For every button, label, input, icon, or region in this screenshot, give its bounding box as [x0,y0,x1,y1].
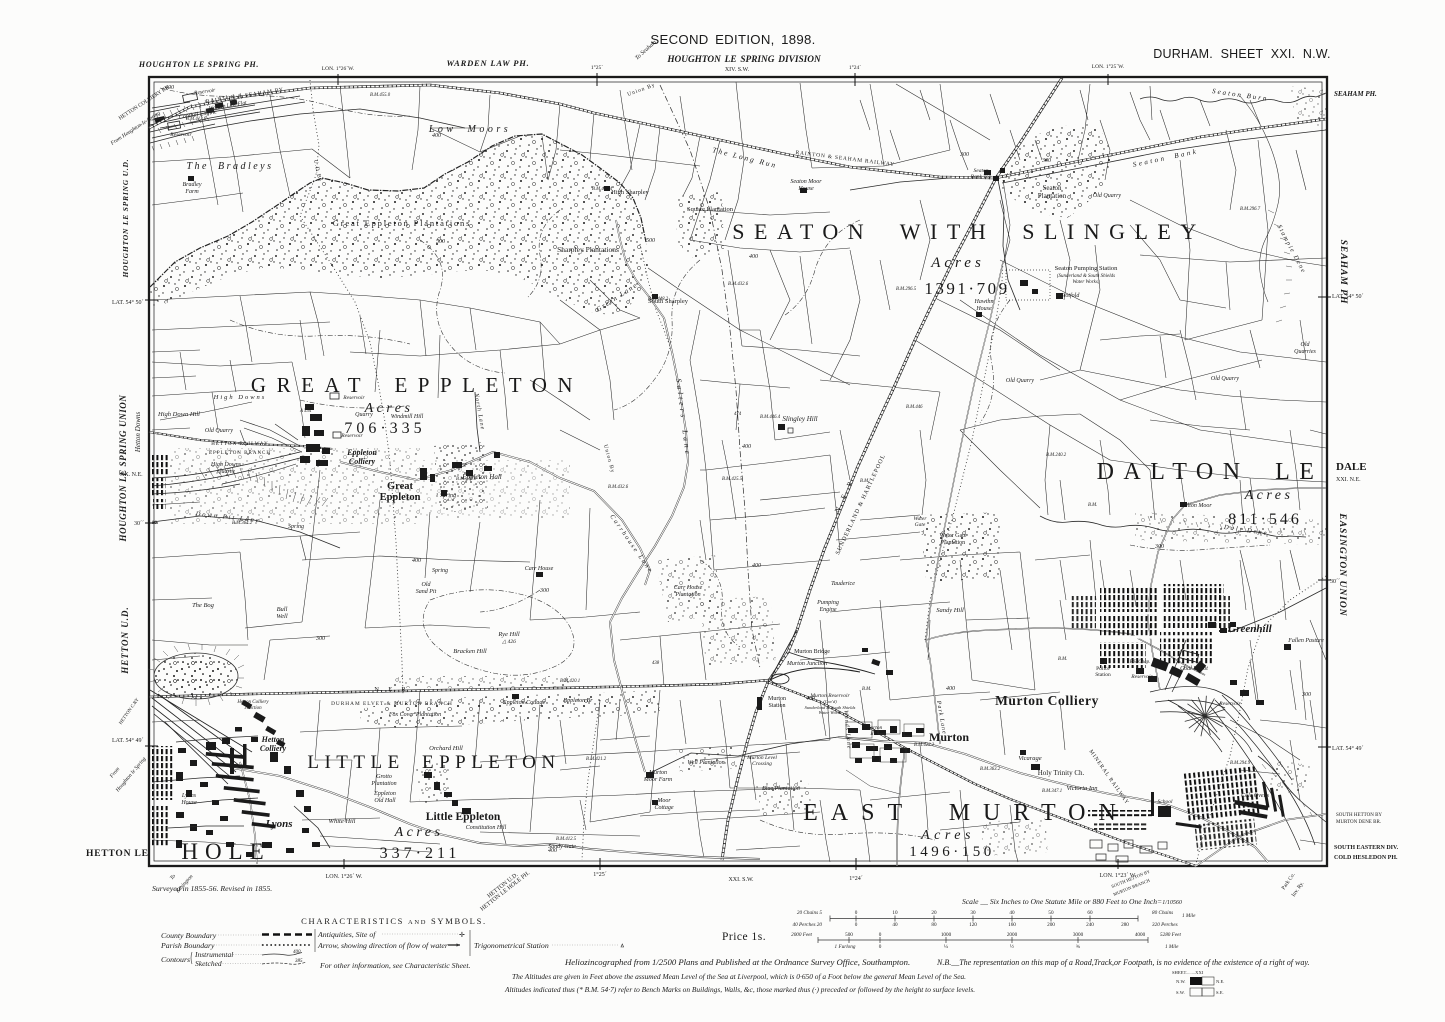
svg-text:Great: Great [387,481,414,492]
svg-text:400: 400 [742,443,751,450]
svg-text:Eppleton: Eppleton [380,492,421,503]
svg-text:300: 300 [959,152,969,158]
svg-text:EPPLETON BRANCH: EPPLETON BRANCH [209,451,271,456]
svg-text:B.M.432.6: B.M.432.6 [728,282,749,287]
svg-text:200: 200 [1047,922,1055,928]
svg-text:500: 500 [646,238,655,244]
svg-text:400: 400 [946,685,955,692]
svg-text:Fallen Pasture: Fallen Pasture [1287,638,1324,644]
svg-text:Instrumental: Instrumental [194,950,233,959]
svg-text:40 Perches 20: 40 Perches 20 [793,921,823,928]
svg-text:House: House [180,800,197,806]
svg-text:300: 300 [1301,692,1311,698]
svg-text:Acres: Acres [920,828,975,843]
svg-text:B.M.: B.M. [862,687,871,692]
svg-text:400: 400 [432,132,441,139]
svg-text:B.M.432.6: B.M.432.6 [608,485,629,490]
svg-text:Quarry: Quarry [217,469,235,475]
svg-text:N. E. R: N. E. R [374,686,408,693]
svg-text:High Downs: High Downs [210,462,242,468]
svg-text:White Hill: White Hill [329,818,356,825]
svg-text:Eppleton: Eppleton [373,791,396,797]
svg-text:Bradley: Bradley [183,182,202,188]
svg-text:P.S. Chap.: P.S. Chap. [1129,660,1151,665]
svg-text:Moor Farm: Moor Farm [643,777,673,783]
svg-text:0: 0 [855,922,858,928]
svg-text:SOUTH HETTON BY: SOUTH HETTON BY [1336,813,1382,818]
svg-text:HOUGHTON LE SPRING PH.: HOUGHTON LE SPRING PH. [138,60,259,69]
svg-text:B.M.448.2: B.M.448.2 [648,297,669,302]
svg-text:30´´: 30´´ [1330,579,1340,585]
svg-text:Cole Ovens: Cole Ovens [1241,793,1269,799]
svg-text:30: 30 [970,910,976,916]
svg-text:Lyons: Lyons [264,818,292,830]
svg-text:80: 80 [931,922,937,928]
svg-text:Eppleton: Eppleton [346,448,377,457]
svg-text:Moor: Moor [656,798,671,804]
svg-text:County Boundary: County Boundary [161,931,217,940]
svg-text:Quarry: Quarry [355,412,373,418]
svg-text:Reservoir: Reservoir [1130,674,1153,680]
svg-text:Altitudes indicated thus (* B.: Altitudes indicated thus (* B.M. 54·7) r… [504,985,975,994]
svg-text:B.M.: B.M. [1088,503,1097,508]
svg-text:Plantation: Plantation [370,781,396,787]
svg-text:0: 0 [879,944,882,950]
svg-text:Stotfold: Stotfold [1061,292,1081,299]
svg-text:Old Quarry: Old Quarry [1006,378,1035,384]
svg-text:3000: 3000 [1073,932,1084,938]
svg-text:SECOND EDITION, 1898.: SECOND EDITION, 1898. [650,32,815,47]
svg-text:Acres: Acres [930,255,985,271]
svg-text:Fox Cover Plantation: Fox Cover Plantation [388,712,441,718]
svg-text:Old: Old [422,582,432,588]
svg-text:EAST MURTON: EAST MURTON [803,800,1129,826]
svg-text:Heliozincographed from 1/2500: Heliozincographed from 1/2500 Plans and … [564,957,910,967]
svg-text:Seaton Pumping Station: Seaton Pumping Station [1055,265,1119,272]
svg-text:B.M.364.2: B.M.364.2 [232,521,253,526]
svg-text:Spring: Spring [440,493,456,499]
svg-text:Well Plantation: Well Plantation [687,760,724,766]
svg-text:0: 0 [855,910,858,916]
svg-text:B.M.296.7: B.M.296.7 [1240,207,1261,212]
svg-text:The Bradleys: The Bradleys [186,161,273,172]
svg-text:Colliery: Colliery [349,457,376,466]
svg-text:160: 160 [1008,922,1016,928]
svg-text:Station: Station [768,703,785,709]
svg-text:Plantation: Plantation [674,592,700,598]
svg-text:CHARACTERISTICS AND SYMBOLS.: CHARACTERISTICS AND SYMBOLS. [301,916,487,926]
svg-text:80 Chains: 80 Chains [1152,910,1173,916]
svg-text:300: 300 [315,636,325,642]
svg-text:B.M.455.0: B.M.455.0 [370,93,391,98]
svg-text:WARDEN LAW PH.: WARDEN LAW PH. [446,58,529,68]
svg-text:DALE: DALE [1336,461,1367,473]
svg-text:Surveyed in 1855-56. Revised: Surveyed in 1855-56. Revised in 1855. [152,884,272,893]
svg-text:10: 10 [892,910,898,916]
svg-text:COLD HESLEDON PH.: COLD HESLEDON PH. [1334,855,1398,861]
svg-text:Reservoir: Reservoir [340,433,363,439]
svg-text:High Down Hill: High Down Hill [157,411,200,418]
svg-text:Hetton Colliery: Hetton Colliery [236,700,269,705]
svg-text:Water Gate: Water Gate [940,533,967,539]
svg-text:320 Perches: 320 Perches [1152,922,1178,928]
svg-text:XXI. S.W.: XXI. S.W. [728,877,754,883]
svg-text:Station: Station [1095,672,1111,678]
svg-text:Reservoir: Reservoir [342,395,365,401]
svg-text:SHEET........XXI: SHEET........XXI [1172,970,1204,975]
svg-text:N.E.: N.E. [1216,979,1224,984]
svg-text:120: 120 [969,922,977,928]
svg-text:1496·150: 1496·150 [909,844,995,860]
svg-text:Acres: Acres [394,825,444,840]
svg-text:Spring: Spring [288,524,304,530]
svg-text:LAT. 54° 50´: LAT. 54° 50´ [112,299,143,306]
svg-text:The Bog: The Bog [192,602,215,609]
svg-text:½: ½ [1010,943,1014,950]
svg-text:N.W.: N.W. [1176,979,1186,984]
svg-text:0: 0 [879,932,882,938]
svg-text:400: 400 [548,847,557,854]
svg-text:DURHAM. SHEET XXI. N.W.: DURHAM. SHEET XXI. N.W. [1153,47,1331,61]
svg-text:LON. 1°26´ W.: LON. 1°26´ W. [326,873,363,880]
svg-text:B.M.425.5: B.M.425.5 [722,477,743,482]
svg-text:HETTON RAILWAY: HETTON RAILWAY [211,442,268,447]
svg-text:Constitution Hill: Constitution Hill [466,825,507,831]
svg-text:5280 Feet: 5280 Feet [1160,932,1181,938]
svg-text:B.M.446: B.M.446 [906,405,923,410]
svg-text:Murton Bridge: Murton Bridge [794,649,830,655]
svg-text:Hetton Downs: Hetton Downs [134,412,142,454]
svg-text:Junction: Junction [244,706,262,711]
svg-text:337·211: 337·211 [380,845,461,862]
svg-text:LAT. 54° 50´: LAT. 54° 50´ [1332,293,1363,300]
svg-text:Greenhill: Greenhill [1228,623,1272,635]
svg-text:Reservoir: Reservoir [169,132,192,138]
svg-text:LON. 1°26´W.: LON. 1°26´W. [322,65,355,72]
svg-text:House: House [975,306,992,312]
svg-text:Bracken Hill: Bracken Hill [453,648,487,655]
svg-text:Price 1s.: Price 1s. [722,931,766,943]
svg-text:Pumping: Pumping [816,600,839,606]
svg-text:HOLE: HOLE [181,839,270,864]
svg-text:300: 300 [539,588,549,594]
svg-text:B.M.412.6: B.M.412.6 [186,117,207,122]
svg-text:1°25´: 1°25´ [593,871,606,878]
svg-text:S.W.: S.W. [1176,990,1185,995]
svg-text:Parish Boundary: Parish Boundary [160,941,215,950]
svg-text:1391·709: 1391·709 [924,279,1009,298]
svg-text:A 534: A 534 [299,409,312,414]
svg-text:B.M.442.4: B.M.442.4 [592,187,613,192]
svg-text:Antiquities, Site of: Antiquities, Site of [317,930,377,939]
svg-text:B.M.: B.M. [860,479,869,484]
svg-text:SEATON WITH SLINGLEY: SEATON WITH SLINGLEY [732,219,1206,244]
svg-text:40: 40 [892,922,898,928]
svg-text:Quarries: Quarries [1294,349,1316,355]
svg-text:B.M.363.2: B.M.363.2 [980,767,1001,772]
svg-text:Murton Colliery: Murton Colliery [995,693,1099,708]
svg-text:XIV. S.W.: XIV. S.W. [725,67,750,73]
svg-text:Cottage: Cottage [655,805,674,811]
svg-text:400: 400 [752,562,761,569]
svg-text:Rye Hill: Rye Hill [497,631,520,638]
svg-text:Carr House: Carr House [674,585,703,591]
svg-text:XX. N.E.: XX. N.E. [120,472,143,478]
svg-text:HOUGHTON LE SPRING DIVISION: HOUGHTON LE SPRING DIVISION [666,55,821,65]
svg-text:1°24´: 1°24´ [849,875,862,882]
svg-text:Contours: Contours [161,955,190,964]
svg-text:MURTON DENE BR.: MURTON DENE BR. [1336,820,1381,825]
svg-text:B.M.240.2: B.M.240.2 [1046,453,1067,458]
svg-text:N.B.__The representation on th: N.B.__The representation on this map of … [936,958,1309,967]
svg-text:HETTON LE: HETTON LE [86,849,149,859]
svg-text:438: 438 [652,661,660,666]
svg-text:Carr House: Carr House [525,566,554,572]
svg-text:400: 400 [293,950,301,955]
svg-text:SOUTH EASTERN DIV.: SOUTH EASTERN DIV. [1334,845,1399,851]
svg-text:Well: Well [276,613,288,620]
svg-text:Engine: Engine [819,607,837,613]
svg-text:500: 500 [436,239,445,245]
svg-text:Colliery: Colliery [260,744,287,753]
svg-text:Slingley Hill: Slingley Hill [782,415,817,423]
svg-text:Old Quarry: Old Quarry [1093,193,1122,199]
svg-text:LAT. 54° 49´: LAT. 54° 49´ [112,737,143,744]
svg-text:Plantation: Plantation [941,540,965,546]
svg-text:¼: ¼ [944,944,948,950]
svg-text:B.M.296.5: B.M.296.5 [896,287,917,292]
svg-text:S.E.: S.E. [1216,990,1224,995]
svg-text:¾: ¾ [1076,943,1080,950]
svg-text:1 Mile: 1 Mile [1182,913,1196,919]
svg-text:400: 400 [806,695,815,702]
svg-text:LAT. 54° 49´: LAT. 54° 49´ [1332,745,1363,752]
svg-text:Reservoir: Reservoir [1218,701,1241,707]
svg-text:20 Chains 5: 20 Chains 5 [797,910,822,916]
svg-text:GREAT EPPLETON: GREAT EPPLETON [251,373,583,397]
svg-text:Square Plantation: Square Plantation [687,206,734,213]
svg-text:School: School [1158,799,1173,805]
svg-text:B.M.412.5: B.M.412.5 [556,837,577,842]
svg-text:40: 40 [1009,910,1015,916]
svg-text:HOUGHTON LE SPRING U.D.: HOUGHTON LE SPRING U.D. [121,159,130,279]
svg-text:2000: 2000 [1007,932,1018,938]
svg-text:High Sharpley: High Sharpley [611,189,649,196]
svg-text:B.M.: B.M. [1058,657,1067,662]
svg-text:Orchard Hill: Orchard Hill [429,745,463,752]
svg-text:400: 400 [412,557,421,564]
svg-text:385: 385 [295,959,303,964]
svg-text:HETTON U.D.: HETTON U.D. [120,606,130,675]
svg-text:Old: Old [1301,342,1311,348]
svg-text:30´´: 30´´ [134,521,144,527]
svg-text:(Sunderland & South Shields: (Sunderland & South Shields [1057,274,1115,279]
svg-text:Spring: Spring [432,568,448,574]
svg-text:DURHAM ELVET & MURTON BRANCH: DURHAM ELVET & MURTON BRANCH [331,701,453,707]
svg-text:The Altitudes are given in Fee: The Altitudes are given in Feet above th… [512,972,966,981]
svg-text:Bank Top: Bank Top [971,174,992,180]
svg-text:500: 500 [845,932,853,938]
svg-text:20: 20 [931,910,937,916]
svg-text:Sketched: Sketched [195,959,222,968]
svg-text:High Downs: High Downs [213,394,267,401]
svg-text:Little Eppleton: Little Eppleton [426,811,501,823]
svg-text:Blue Plantation: Blue Plantation [762,786,800,792]
svg-text:Arrow, showing direction of fl: Arrow, showing direction of flow of wate… [317,941,449,950]
svg-text:Windmill Hill: Windmill Hill [391,414,424,420]
svg-text:SEAHAM PH.: SEAHAM PH. [1334,90,1377,98]
svg-text:Eppleton Br: Eppleton Br [562,698,593,704]
svg-text:Gate: Gate [915,522,926,528]
svg-text:Holy Trinity Ch.: Holy Trinity Ch. [1038,769,1085,777]
svg-text:50: 50 [1048,910,1054,916]
svg-text:Old Hall: Old Hall [374,798,396,804]
svg-text:300: 300 [1041,158,1051,164]
svg-text:300: 300 [1154,544,1164,550]
svg-text:Grotto: Grotto [376,774,392,780]
svg-text:(Cov'd): (Cov'd) [823,699,837,704]
svg-text:LITTLE EPPLETON: LITTLE EPPLETON [307,752,560,773]
svg-text:LON. 1°25´W.: LON. 1°25´W. [1092,63,1125,70]
svg-text:1 Furlong: 1 Furlong [835,944,856,950]
svg-text:For other information, see Cha: For other information, see Characteristi… [319,961,471,970]
svg-text:60: 60 [1087,910,1093,916]
svg-text:400: 400 [749,253,758,260]
svg-text:B.M.422.2: B.M.422.2 [914,743,935,748]
svg-text:B.M.347.1: B.M.347.1 [1042,789,1062,794]
svg-text:Dalton Moor: Dalton Moor [1179,503,1212,509]
svg-text:DALTON LE: DALTON LE [1097,459,1324,485]
svg-text:B.M.420.1: B.M.420.1 [560,679,580,684]
svg-text:Hawthn: Hawthn [973,299,993,305]
svg-text:Murton: Murton [648,770,667,776]
svg-text:Scale __ Six Inches to One Sta: Scale __ Six Inches to One Statute Mile … [962,897,1182,906]
svg-text:Murton Junction: Murton Junction [786,661,827,667]
svg-text:4000: 4000 [1135,932,1146,938]
svg-text:Murton: Murton [929,730,969,744]
svg-text:Sand Pit: Sand Pit [416,589,437,595]
svg-text:△ 426: △ 426 [501,638,516,645]
svg-text:Tauderice: Tauderice [831,581,855,587]
svg-text:Hetton: Hetton [261,735,285,744]
svg-text:Water Works: Water Works [819,710,842,715]
svg-text:Seaton Moor: Seaton Moor [790,179,822,185]
svg-text:XXI. N.E.: XXI. N.E. [1336,477,1361,483]
svg-text:✛: ✛ [459,931,465,939]
svg-text:Victoria Inn: Victoria Inn [1066,785,1097,792]
svg-text:Seaton: Seaton [1042,184,1062,192]
svg-text:Bull: Bull [277,606,288,613]
svg-text:Eppleton Cottage: Eppleton Cottage [502,700,545,706]
svg-text:Acres: Acres [1244,488,1294,503]
svg-text:B.M.446.4: B.M.446.4 [760,415,781,420]
svg-text:Farm: Farm [184,189,199,195]
svg-text:Sharpley Plantations: Sharpley Plantations [557,245,619,254]
svg-text:Sandy Hill: Sandy Hill [936,607,964,614]
svg-text:Vicarage: Vicarage [1018,755,1041,762]
svg-text:B.M.421.2: B.M.421.2 [586,757,607,762]
svg-text:Great Eppleton Plantations: Great Eppleton Plantations [333,218,471,228]
svg-text:2000 Feet: 2000 Feet [791,932,812,938]
svg-text:B.M.294.9: B.M.294.9 [1230,761,1251,766]
svg-text:1 Mile: 1 Mile [1165,944,1179,950]
svg-text:Plantation: Plantation [1038,192,1067,200]
svg-text:Old Quarry: Old Quarry [1211,376,1240,382]
svg-text:Trigonometrical Station: Trigonometrical Station [474,941,549,950]
svg-text:Lyons: Lyons [181,793,197,799]
svg-text:Coal Depot: Coal Depot [1180,666,1208,672]
svg-text:1°25´: 1°25´ [591,64,603,71]
svg-text:474: 474 [734,412,742,417]
svg-text:240: 240 [1086,922,1094,928]
svg-text:Murton: Murton [768,696,786,702]
svg-text:Crossing: Crossing [752,761,772,767]
svg-text:280: 280 [1121,922,1129,928]
svg-text:Water Works): Water Works) [1073,280,1100,285]
svg-text:1°24´: 1°24´ [849,64,861,71]
svg-text:EASINGTON UNION: EASINGTON UNION [1337,512,1347,616]
svg-text:HOUGHTON LE SPRING UNION: HOUGHTON LE SPRING UNION [118,395,128,543]
svg-text:1000: 1000 [941,932,952,938]
svg-text:B.M.434.8: B.M.434.8 [456,477,477,482]
svg-text:Old Quarry: Old Quarry [205,428,234,434]
svg-text:Inn: Inn [869,731,878,737]
svg-text:House: House [797,186,814,192]
